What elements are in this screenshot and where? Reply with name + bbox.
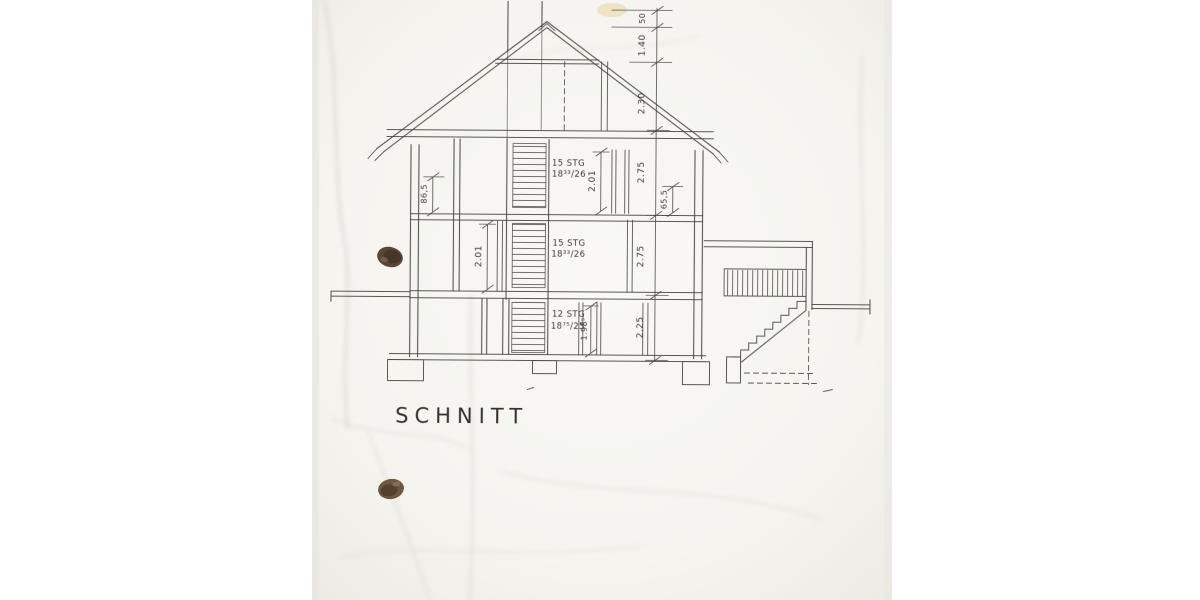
page-title: SCHNITT	[395, 404, 528, 429]
dim-parapet-left: 86,5	[420, 184, 429, 203]
chain-dim-ridge: 1.40	[638, 34, 648, 56]
stair-runs	[512, 143, 546, 352]
paper-left-edge-shadow	[312, 0, 319, 600]
stair-run-ground	[512, 223, 545, 287]
stair-run-basement	[512, 302, 545, 352]
stair-attic-steps-label: 15 STG	[552, 159, 585, 169]
chain-dim-ground: 2.75	[636, 245, 646, 267]
paper-right-edge-shadow	[884, 0, 892, 600]
dim-lintel-right: 65,5	[660, 190, 669, 209]
chain-dim-attic: 2.30	[637, 92, 647, 114]
section-drawing-scan: 15 STG 18³³/26 15 STG 18³³/26 12 STG 18⁷…	[0, 0, 1200, 600]
chain-dim-basement: 2.25	[636, 316, 646, 338]
dim-door-basement: 1.98⁵	[580, 317, 589, 340]
scanned-page: 15 STG 18³³/26 15 STG 18³³/26 12 STG 18⁷…	[0, 0, 1200, 600]
stair-attic-ratio-label: 18³³/26	[552, 170, 586, 180]
stair-ground-ratio-label: 18³³/26	[551, 250, 585, 260]
stair-run-attic	[513, 143, 546, 207]
chain-dim-chimney: 50	[638, 13, 647, 24]
paper	[312, 0, 892, 600]
annex-railing-hatch	[725, 270, 805, 297]
dim-door-ground: 2.01	[474, 245, 484, 267]
chain-dim-upper: 2.75	[637, 161, 647, 183]
stair-ground-steps-label: 15 STG	[552, 239, 585, 249]
dim-door-upper: 2.01	[588, 170, 598, 192]
